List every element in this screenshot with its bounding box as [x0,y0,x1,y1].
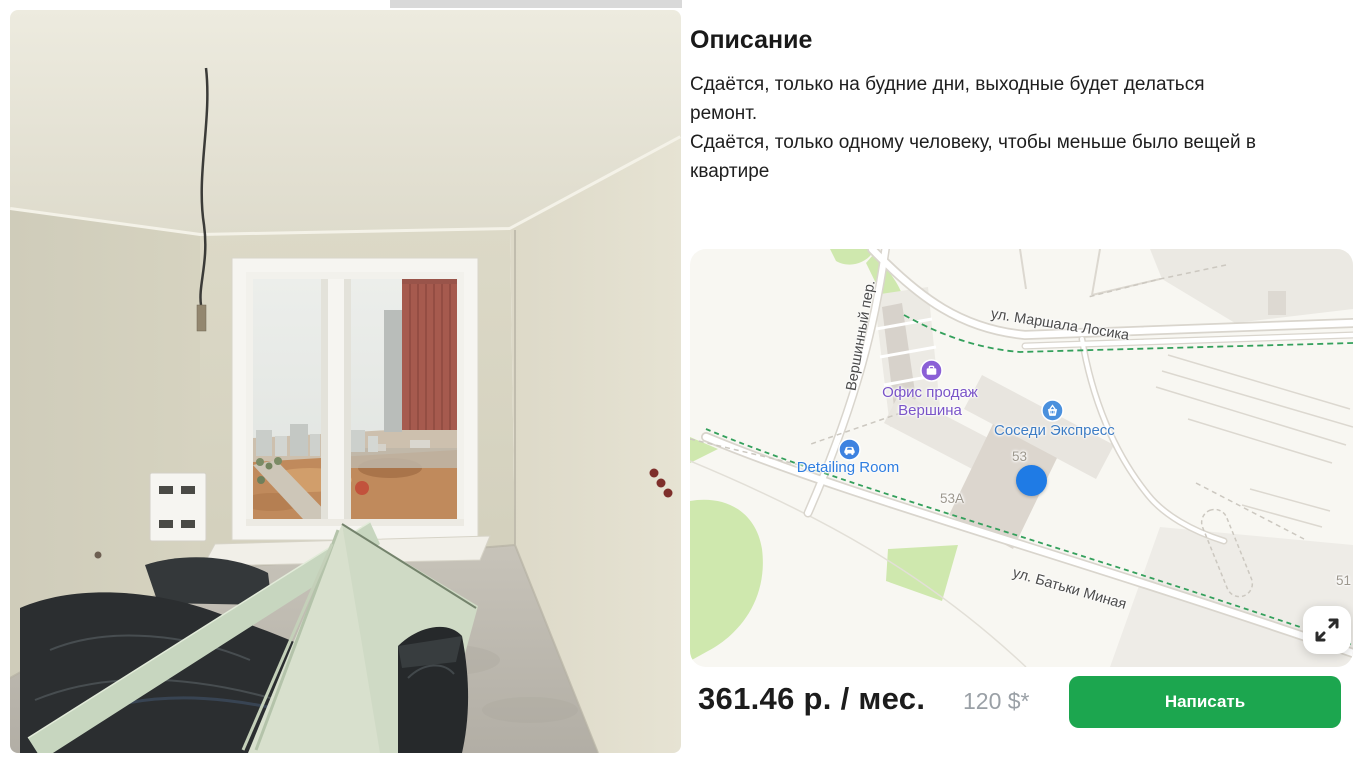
basket-icon [1041,399,1064,422]
car-icon [838,438,861,461]
expand-arrows-icon [1303,606,1351,654]
description-line: ремонт. [690,99,1362,128]
location-map[interactable]: Вершинный пер. ул. Маршала Лосика ул. Ба… [690,249,1353,667]
poi-label-detailing: Detailing Room [788,459,908,477]
house-number-53: 53 [1012,449,1027,464]
briefcase-icon [920,359,943,382]
write-button[interactable]: Написать [1069,676,1341,728]
description-line: Сдаётся, только на будние дни, выходные … [690,70,1362,99]
price-main: 361.46 р. / мес. [698,681,925,717]
listing-photo[interactable] [10,10,681,753]
poi-label-sosedi: Соседи Экспресс [994,422,1114,440]
house-number-53a: 53А [940,491,964,506]
house-number-51: 51 [1336,573,1351,588]
map-expand-button[interactable] [1303,606,1351,654]
description-title: Описание [690,26,812,55]
description-line: Сдаётся, только одному человеку, чтобы м… [690,128,1362,157]
room-photo-graphic [10,10,681,753]
description-line: квартире [690,157,1362,186]
description-text: Сдаётся, только на будние дни, выходные … [690,70,1362,186]
poi-label-line: Вершина [850,402,1010,420]
poi-label-line: Офис продаж [850,384,1010,402]
price-secondary: 120 $* [963,688,1030,715]
poi-label-sales-office: Офис продаж Вершина [850,384,1010,420]
map-marker [1016,465,1047,496]
top-edge-strip [390,0,682,8]
